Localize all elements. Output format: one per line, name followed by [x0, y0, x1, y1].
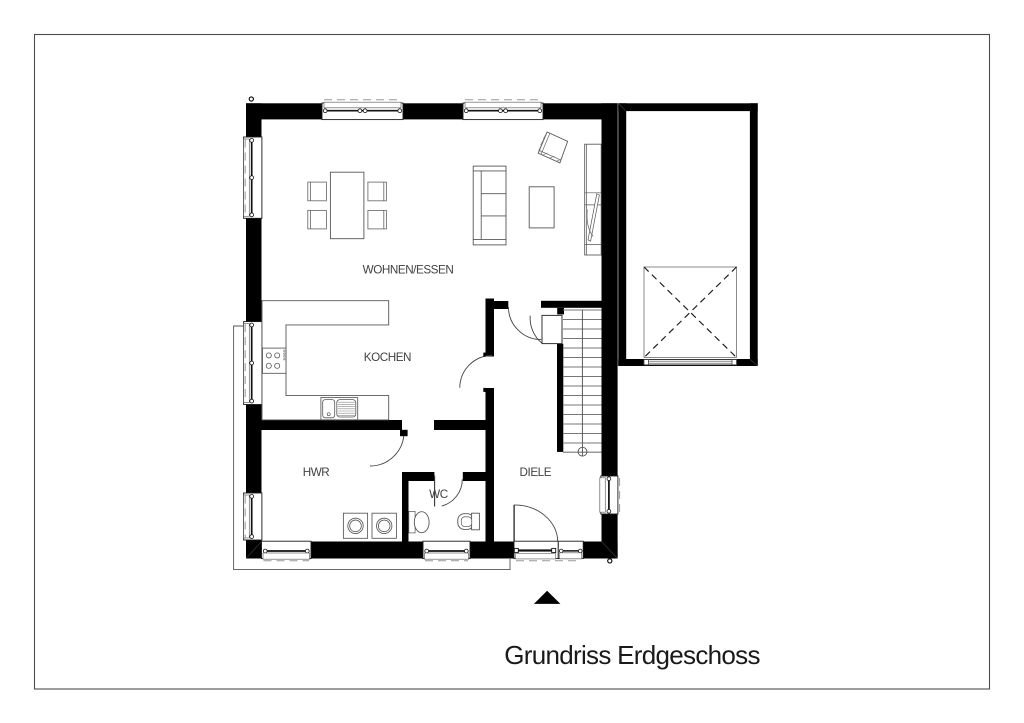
svg-text:WOHNEN/ESSEN: WOHNEN/ESSEN [363, 264, 454, 277]
svg-text:Grundriss Erdgeschoss: Grundriss Erdgeschoss [504, 640, 760, 670]
svg-text:DIELE: DIELE [520, 466, 552, 479]
svg-text:HWR: HWR [303, 466, 330, 479]
svg-text:KOCHEN: KOCHEN [364, 351, 411, 364]
svg-text:WC: WC [429, 488, 448, 501]
